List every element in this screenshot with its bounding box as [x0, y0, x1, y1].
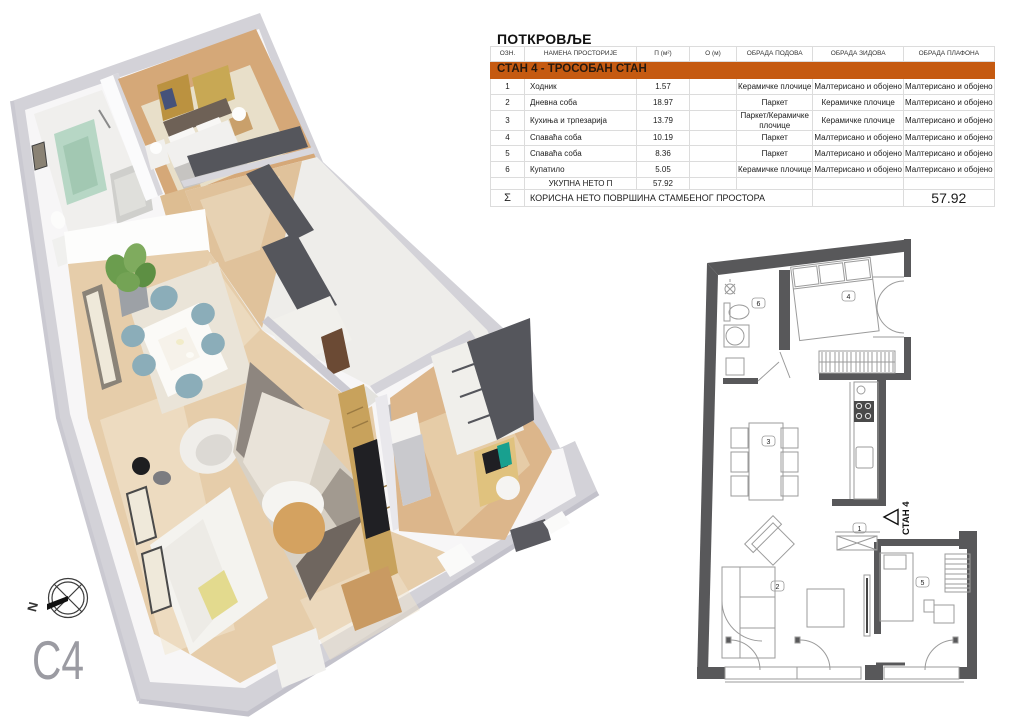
svg-text:N: N: [24, 600, 41, 613]
svg-text:4: 4: [847, 294, 851, 301]
svg-text:C4: C4: [32, 629, 84, 691]
svg-text:2: 2: [776, 584, 780, 591]
svg-text:3: 3: [767, 439, 771, 446]
svg-text:СТАН 4: СТАН 4: [901, 501, 912, 535]
svg-text:5: 5: [921, 580, 925, 587]
svg-text:6: 6: [757, 301, 761, 308]
svg-text:1: 1: [858, 526, 862, 533]
